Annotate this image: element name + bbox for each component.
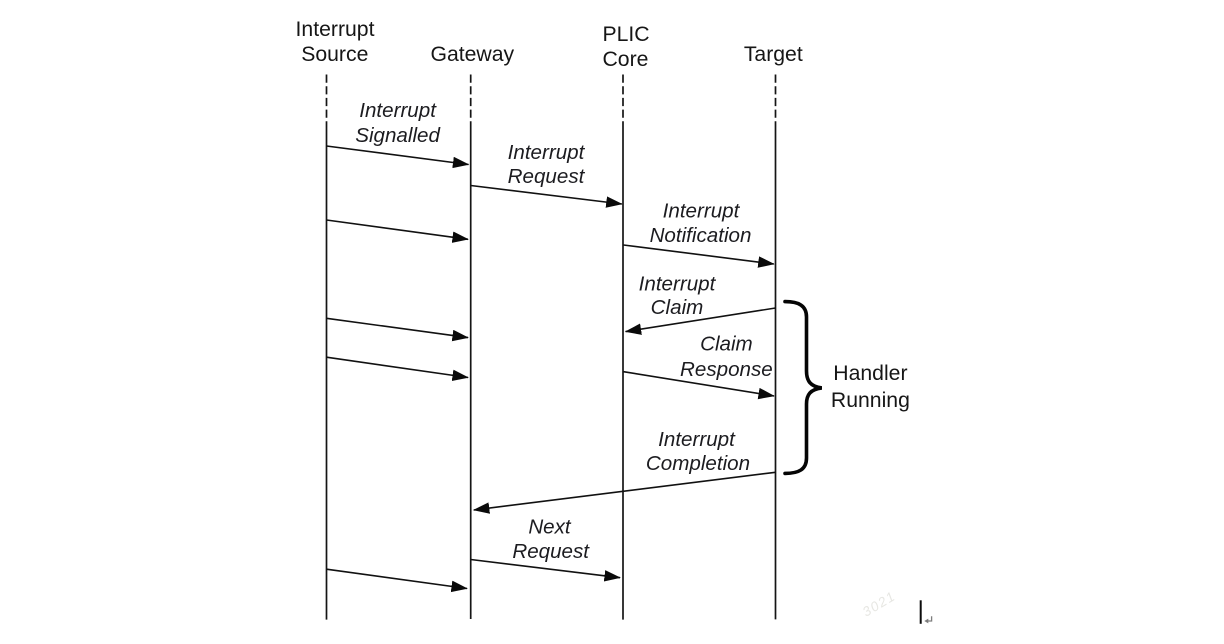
svg-text:Running: Running — [831, 389, 910, 412]
svg-text:Interrupt: Interrupt — [663, 200, 741, 223]
svg-text:Interrupt: Interrupt — [296, 18, 375, 41]
svg-text:Notification: Notification — [650, 224, 752, 247]
svg-text:Claim: Claim — [651, 296, 704, 319]
svg-text:3021: 3021 — [860, 588, 899, 619]
svg-text:Target: Target — [744, 43, 803, 66]
svg-text:Interrupt: Interrupt — [508, 141, 586, 164]
svg-text:Claim: Claim — [700, 332, 753, 355]
svg-text:Source: Source — [301, 43, 368, 66]
svg-text:Signalled: Signalled — [355, 124, 440, 147]
svg-text:Handler: Handler — [833, 362, 907, 385]
svg-text:Core: Core — [603, 48, 649, 71]
svg-text:Interrupt: Interrupt — [658, 428, 736, 451]
svg-text:Request: Request — [512, 540, 590, 563]
svg-text:Response: Response — [680, 358, 773, 381]
svg-text:Gateway: Gateway — [430, 43, 514, 66]
svg-text:Next: Next — [528, 515, 572, 538]
svg-text:PLIC: PLIC — [603, 23, 650, 46]
svg-text:Completion: Completion — [646, 452, 750, 475]
svg-text:Interrupt: Interrupt — [359, 99, 437, 122]
svg-text:Request: Request — [508, 165, 586, 188]
svg-text:Interrupt: Interrupt — [639, 273, 717, 296]
